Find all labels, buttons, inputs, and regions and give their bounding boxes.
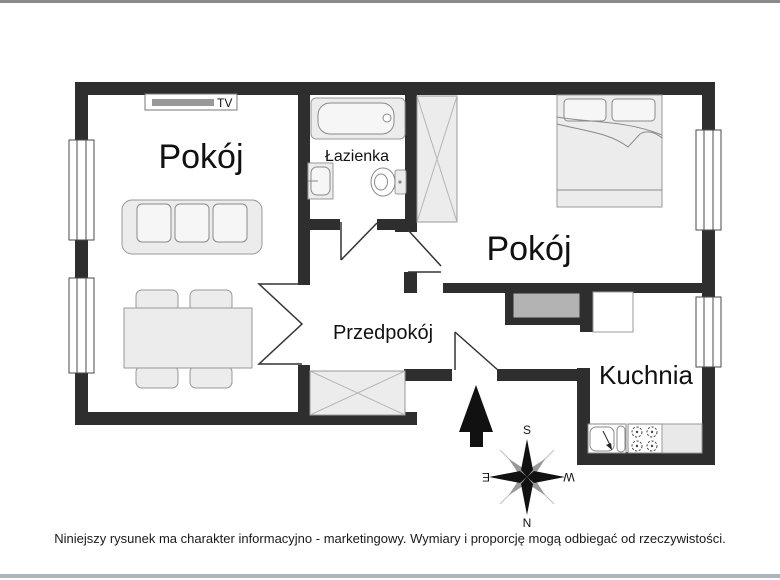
label-hallway: Przedpokój <box>333 322 433 344</box>
door-bedroom <box>408 230 441 272</box>
compass-point-major <box>527 471 565 483</box>
compass-letter-top: S <box>523 423 531 437</box>
burner-center <box>651 445 653 447</box>
label-bedroom: Pokój <box>486 230 571 268</box>
window-frame <box>69 278 94 373</box>
arrow-stem <box>470 430 483 447</box>
wardrobe-hallway <box>310 371 405 415</box>
burner-center <box>651 431 653 433</box>
compass-letter-left: E <box>482 470 490 484</box>
toilet <box>371 168 406 196</box>
door-swing <box>408 230 441 266</box>
kitchen-counter <box>662 424 702 453</box>
floorplan-drawing: TV <box>0 0 780 580</box>
sofa-cushion <box>213 204 247 242</box>
pillow <box>612 99 655 121</box>
tv-unit: TV <box>145 94 237 110</box>
fridge <box>593 292 633 332</box>
label-kitchen: Kuchnia <box>599 360 693 390</box>
window-bedroom <box>696 130 721 230</box>
window-frame <box>69 140 94 240</box>
entrance-arrow <box>459 385 493 447</box>
dining-table <box>124 308 252 368</box>
pillow <box>564 99 606 121</box>
dining-set <box>124 290 252 388</box>
stove <box>628 424 662 453</box>
label-living-room: Pokój <box>158 138 243 176</box>
sofa-cushion <box>137 204 171 242</box>
sofa-cushion <box>175 204 209 242</box>
window-living-bottom <box>69 278 94 373</box>
window-frame <box>696 130 721 230</box>
bathtub-drain <box>383 114 391 122</box>
tv-screen <box>152 99 214 106</box>
window-frame <box>696 297 721 367</box>
bed <box>557 95 662 207</box>
bottom-frame-line <box>0 574 780 578</box>
floorplan-image: TV <box>0 0 780 580</box>
tv-label: TV <box>217 96 232 110</box>
folding-door-living <box>259 284 302 364</box>
window-kitchen <box>696 297 721 367</box>
door-bathroom <box>341 222 377 260</box>
compass-letter-right: W <box>563 470 575 484</box>
bathroom-sink <box>308 163 333 199</box>
wardrobe-bedroom <box>417 96 457 222</box>
disclaimer-text: Niniejszy rysunek ma charakter informacy… <box>0 531 780 546</box>
kitchen-cabinet-gray <box>513 293 580 318</box>
bathtub <box>311 98 405 139</box>
door-swing <box>455 332 499 371</box>
chair <box>190 366 232 388</box>
toilet-bowl-inner <box>375 174 388 190</box>
sofa <box>122 200 262 254</box>
label-bathroom: Łazienka <box>325 148 389 165</box>
doors <box>259 222 499 371</box>
door-entrance <box>455 332 499 371</box>
door-swing <box>341 223 377 260</box>
arrow-head <box>459 385 493 432</box>
window-living-top <box>69 140 94 240</box>
compass-rose: S N E W <box>482 423 575 530</box>
compass-letter-bottom: N <box>523 516 532 530</box>
kitchen-sink-unit <box>588 424 626 453</box>
chair <box>136 366 178 388</box>
burner-center <box>636 431 638 433</box>
burner-center <box>636 445 638 447</box>
drainer <box>617 426 625 452</box>
compass-point-major <box>521 439 533 477</box>
compass-point-major <box>521 477 533 515</box>
compass-point-major <box>489 471 527 483</box>
toilet-button <box>398 180 401 183</box>
